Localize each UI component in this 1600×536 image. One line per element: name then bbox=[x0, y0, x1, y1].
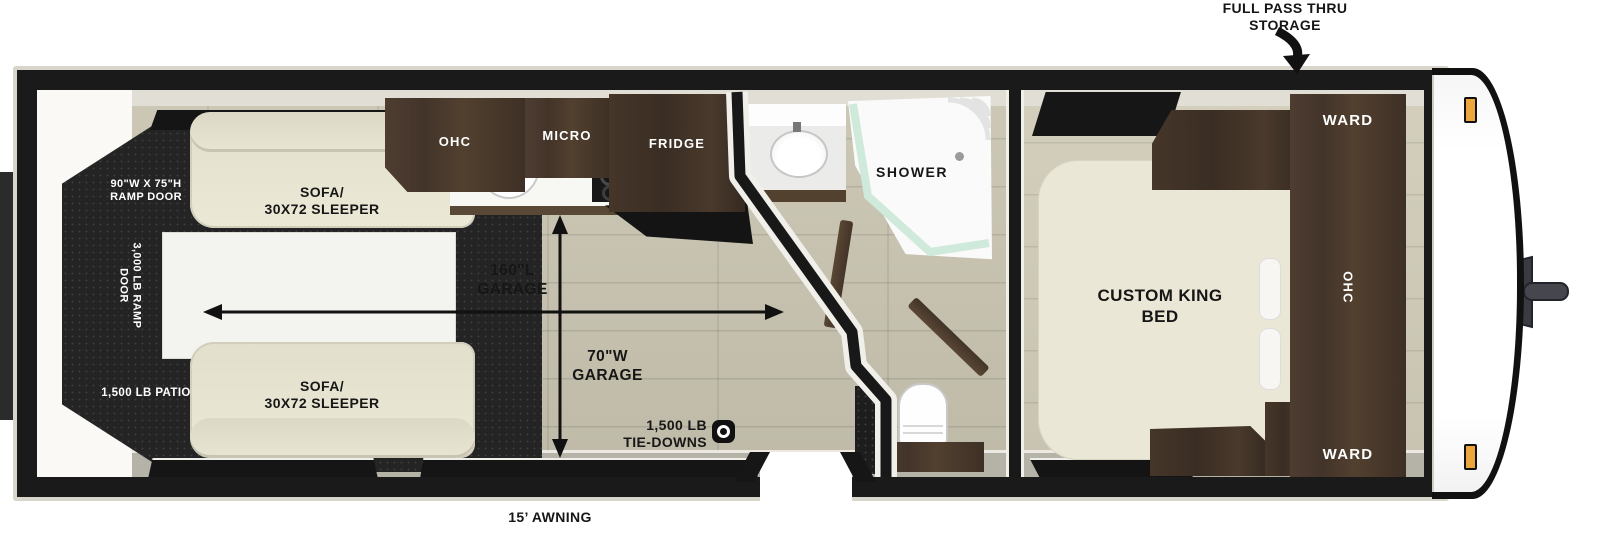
callout-arrowhead-icon bbox=[1283, 54, 1310, 74]
garage-length-label: 160"L GARAGE bbox=[455, 262, 570, 300]
arrowhead-icon bbox=[552, 439, 568, 458]
tiedown-icon bbox=[712, 420, 735, 443]
overlay-lines bbox=[0, 0, 1600, 536]
garage-width-label: 70"W GARAGE bbox=[550, 348, 665, 386]
tiedowns-label: 1,500 LB TIE-DOWNS bbox=[585, 417, 707, 451]
tiedown-ring-icon bbox=[717, 425, 730, 438]
shower-shelves bbox=[948, 100, 988, 140]
arrowhead-icon bbox=[203, 304, 222, 320]
floorplan-diagram: FULL PASS THRU STORAGE 15’ AWNING 90"W X… bbox=[0, 0, 1600, 536]
shower-glass bbox=[853, 104, 989, 252]
arrowhead-icon bbox=[765, 304, 784, 320]
arrowhead-icon bbox=[552, 215, 568, 234]
callout-arrow bbox=[1277, 31, 1298, 58]
